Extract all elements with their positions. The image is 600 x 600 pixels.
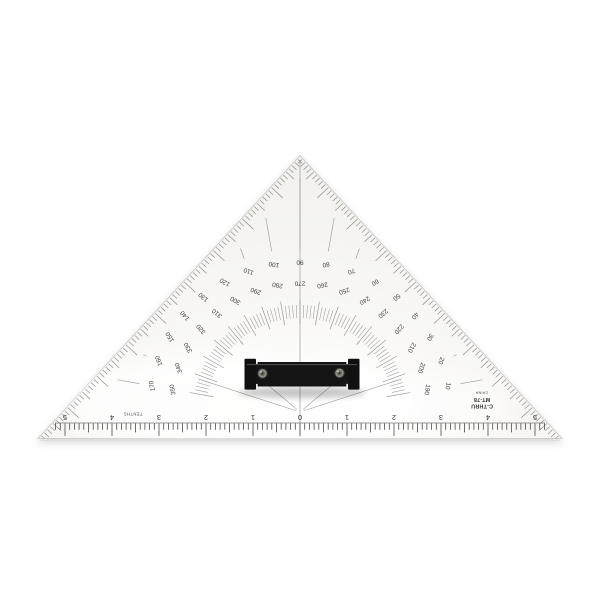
ruler-number: 1 [251,413,255,422]
handle-right-cap [348,359,360,390]
ruler-number: 5 [533,413,537,422]
ruler-number: 5 [63,413,67,422]
ruler-number: 1 [345,413,349,422]
ruler-number: 4 [110,413,114,422]
ruler-number: 3 [157,413,161,422]
ruler-number: 0 [298,413,302,422]
handle-notch-bl [256,384,258,387]
degree-label: 90 [296,258,304,265]
product-photo-stage: 1020304050607080901001101201301401501601… [0,0,600,600]
brand-name-text: C-THRU [471,403,493,409]
handle-screw-right [335,368,344,377]
handle-left-cap [245,359,257,390]
ruler-number: 3 [439,413,443,422]
ruler-number: 2 [204,413,208,422]
degree-label: 270 [294,279,305,286]
ruler-units-label: TENTHS [124,412,143,417]
handle-shadow [238,387,366,398]
ruler-number: 4 [486,413,490,422]
protractor-triangle-photo: 1020304050607080901001101201301401501601… [0,0,600,600]
model-number-text: MT-78 [474,396,490,402]
handle-screw-left [258,369,267,378]
brand-origin-text: CHINA [475,391,488,395]
handle-notch-br [346,384,348,387]
ruler-number: 2 [392,413,396,422]
handle [238,359,366,398]
